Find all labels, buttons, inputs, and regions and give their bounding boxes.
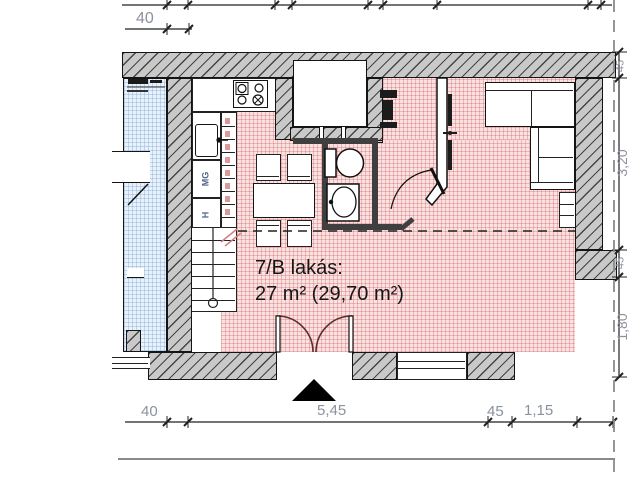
- stair-step-line: [222, 217, 235, 218]
- stair-riser-line: [191, 240, 235, 241]
- stair-number-mark: [225, 209, 230, 215]
- dim-top-40: 40: [136, 11, 154, 27]
- stair-step-line: [222, 191, 235, 192]
- bathroom-wall-right: [372, 144, 378, 224]
- dim-bottom-545: 5,45: [317, 403, 346, 418]
- stair-riser-line: [191, 252, 235, 253]
- window-glazing-line: [112, 363, 148, 364]
- sofa-vertical: [530, 127, 575, 190]
- stair-step-line: [222, 126, 235, 127]
- cabinet-line: [560, 215, 574, 216]
- apartment-label: 7/B lakás:: [255, 255, 343, 281]
- dim-right-320: 3,20: [615, 149, 629, 176]
- dim-right-45-top: 45: [616, 60, 627, 72]
- stair-step-line: [222, 165, 235, 166]
- bathroom-wall-bottom: [322, 224, 402, 230]
- sofa-cushion-line: [531, 90, 532, 126]
- sink-basin: [195, 124, 218, 157]
- bottom-window: [397, 352, 467, 380]
- neighbor-wall-notch: [127, 268, 144, 278]
- stair-number-mark: [225, 196, 230, 202]
- chair: [287, 154, 312, 181]
- stair-step-line: [222, 204, 235, 205]
- upper-stair-flight: [221, 112, 237, 232]
- stair-riser-line: [191, 300, 235, 301]
- bathroom-wall-top: [293, 138, 378, 144]
- stove: [233, 80, 268, 108]
- dining-table: [253, 183, 315, 218]
- sofa-cushion-line: [538, 128, 539, 182]
- shaft-room: [293, 60, 367, 127]
- entrance-triangle-marker: [292, 379, 336, 401]
- sofa-front-line: [531, 182, 573, 183]
- chair-back-line: [257, 176, 279, 177]
- stair-step-line: [222, 139, 235, 140]
- stair-number-mark: [225, 183, 230, 189]
- dishwasher-label: MG: [202, 172, 211, 187]
- dim-bottom-45: 45: [487, 404, 504, 419]
- neighbor-room-floor: [123, 78, 167, 352]
- chair-back-line: [288, 176, 310, 177]
- dim-bottom-115: 1,15: [524, 403, 553, 418]
- stair-number-mark: [225, 131, 230, 137]
- stair-riser-line: [191, 276, 235, 277]
- bathroom-wall-left: [322, 144, 328, 230]
- wall-right-stub: [575, 250, 617, 280]
- sofa-back-line: [486, 90, 573, 91]
- side-cabinet: [559, 192, 576, 228]
- stair-riser-line: [191, 264, 235, 265]
- wall-party: [167, 78, 192, 352]
- chair: [256, 220, 281, 247]
- sofa-horizontal: [485, 82, 575, 127]
- dim-bottom-40: 40: [141, 404, 158, 419]
- floor-plan-canvas: 7/B lakás: 27 m² (29,70 m²) MG H 40 40 5…: [0, 0, 640, 480]
- top-dimension-chain: [122, 0, 612, 10]
- lower-stair-flight: [190, 227, 237, 312]
- dim-right-45-mid: 45: [616, 257, 627, 269]
- chair: [287, 220, 312, 247]
- stair-number-mark: [225, 157, 230, 163]
- window-glazing-line: [398, 361, 465, 362]
- wall-right: [575, 78, 603, 250]
- window-glazing-line: [398, 368, 465, 369]
- stair-number-mark: [225, 118, 230, 124]
- stair-number-mark: [225, 144, 230, 150]
- stair-number-mark: [225, 170, 230, 176]
- fridge-label: H: [202, 212, 211, 219]
- stair-step-line: [222, 178, 235, 179]
- stair-step-line: [222, 152, 235, 153]
- chair-back-line: [288, 225, 310, 226]
- neighbor-door-opening: [112, 151, 150, 183]
- chair-back-line: [257, 225, 279, 226]
- left-window: [112, 357, 150, 369]
- wall-bottom-pier: [467, 352, 515, 380]
- wall-bottom-2: [352, 352, 397, 380]
- stair-riser-line: [191, 288, 235, 289]
- wall-bottom-left-stub: [126, 330, 141, 352]
- cabinet-line: [560, 204, 574, 205]
- apartment-area-label: 27 m² (29,70 m²): [255, 281, 404, 307]
- wall-bottom-1: [148, 352, 277, 380]
- wall-top: [122, 52, 616, 78]
- chair: [256, 154, 281, 181]
- dim-right-180: 1,80: [615, 313, 629, 340]
- sofa-cushion-line: [538, 157, 573, 158]
